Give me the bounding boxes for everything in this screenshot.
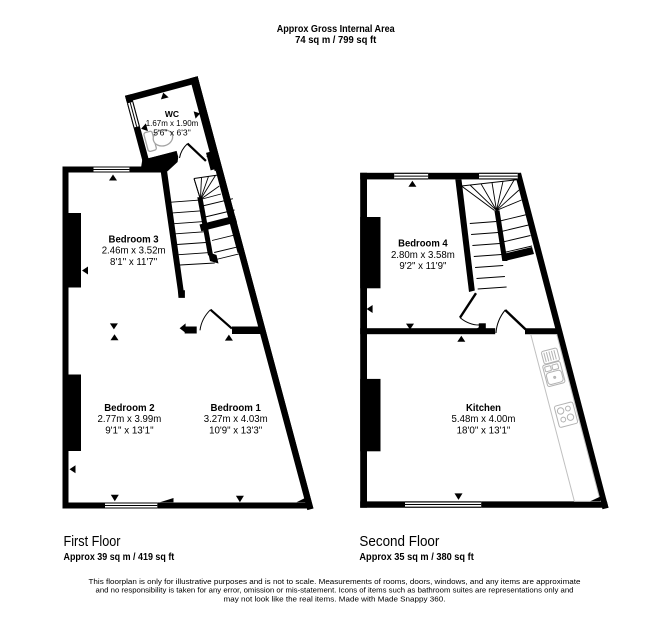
svg-text:Kitchen: Kitchen <box>466 403 501 414</box>
svg-text:Bedroom 2: Bedroom 2 <box>104 403 155 414</box>
svg-text:2.46m x 3.52m: 2.46m x 3.52m <box>102 246 166 257</box>
svg-text:10'9" x 13'3": 10'9" x 13'3" <box>209 425 263 436</box>
svg-text:18'0" x 13'1": 18'0" x 13'1" <box>457 425 511 436</box>
svg-text:Bedroom 4: Bedroom 4 <box>398 239 448 250</box>
svg-text:Bedroom 1: Bedroom 1 <box>211 403 262 414</box>
svg-text:9'2" x 11'9": 9'2" x 11'9" <box>399 261 446 272</box>
svg-text:may not look like the real ite: may not look like the real items. Made w… <box>224 596 446 603</box>
svg-text:Second Floor: Second Floor <box>359 534 439 550</box>
svg-text:and no responsibility is taken: and no responsibility is taken for any e… <box>96 588 574 595</box>
svg-text:5'6" x 6'3": 5'6" x 6'3" <box>153 128 191 138</box>
svg-text:Approx 35 sq m / 380 sq ft: Approx 35 sq m / 380 sq ft <box>359 552 474 563</box>
svg-text:2.80m x 3.58m: 2.80m x 3.58m <box>391 250 455 261</box>
svg-text:5.48m x 4.00m: 5.48m x 4.00m <box>452 414 516 425</box>
svg-text:3.27m x 4.03m: 3.27m x 4.03m <box>204 414 268 425</box>
svg-text:First Floor: First Floor <box>64 534 121 550</box>
svg-text:Approx Gross Internal Area: Approx Gross Internal Area <box>277 24 395 35</box>
svg-text:74 sq m / 799 sq ft: 74 sq m / 799 sq ft <box>295 35 377 46</box>
svg-text:This floorplan is only for ill: This floorplan is only for illustrative … <box>89 579 581 586</box>
svg-text:9'1" x 13'1": 9'1" x 13'1" <box>105 425 154 436</box>
svg-text:2.77m x 3.99m: 2.77m x 3.99m <box>98 414 162 425</box>
svg-text:Approx 39 sq m / 419 sq ft: Approx 39 sq m / 419 sq ft <box>64 552 175 563</box>
svg-text:8'1" x 11'7": 8'1" x 11'7" <box>110 257 158 268</box>
svg-text:Bedroom 3: Bedroom 3 <box>109 234 160 245</box>
